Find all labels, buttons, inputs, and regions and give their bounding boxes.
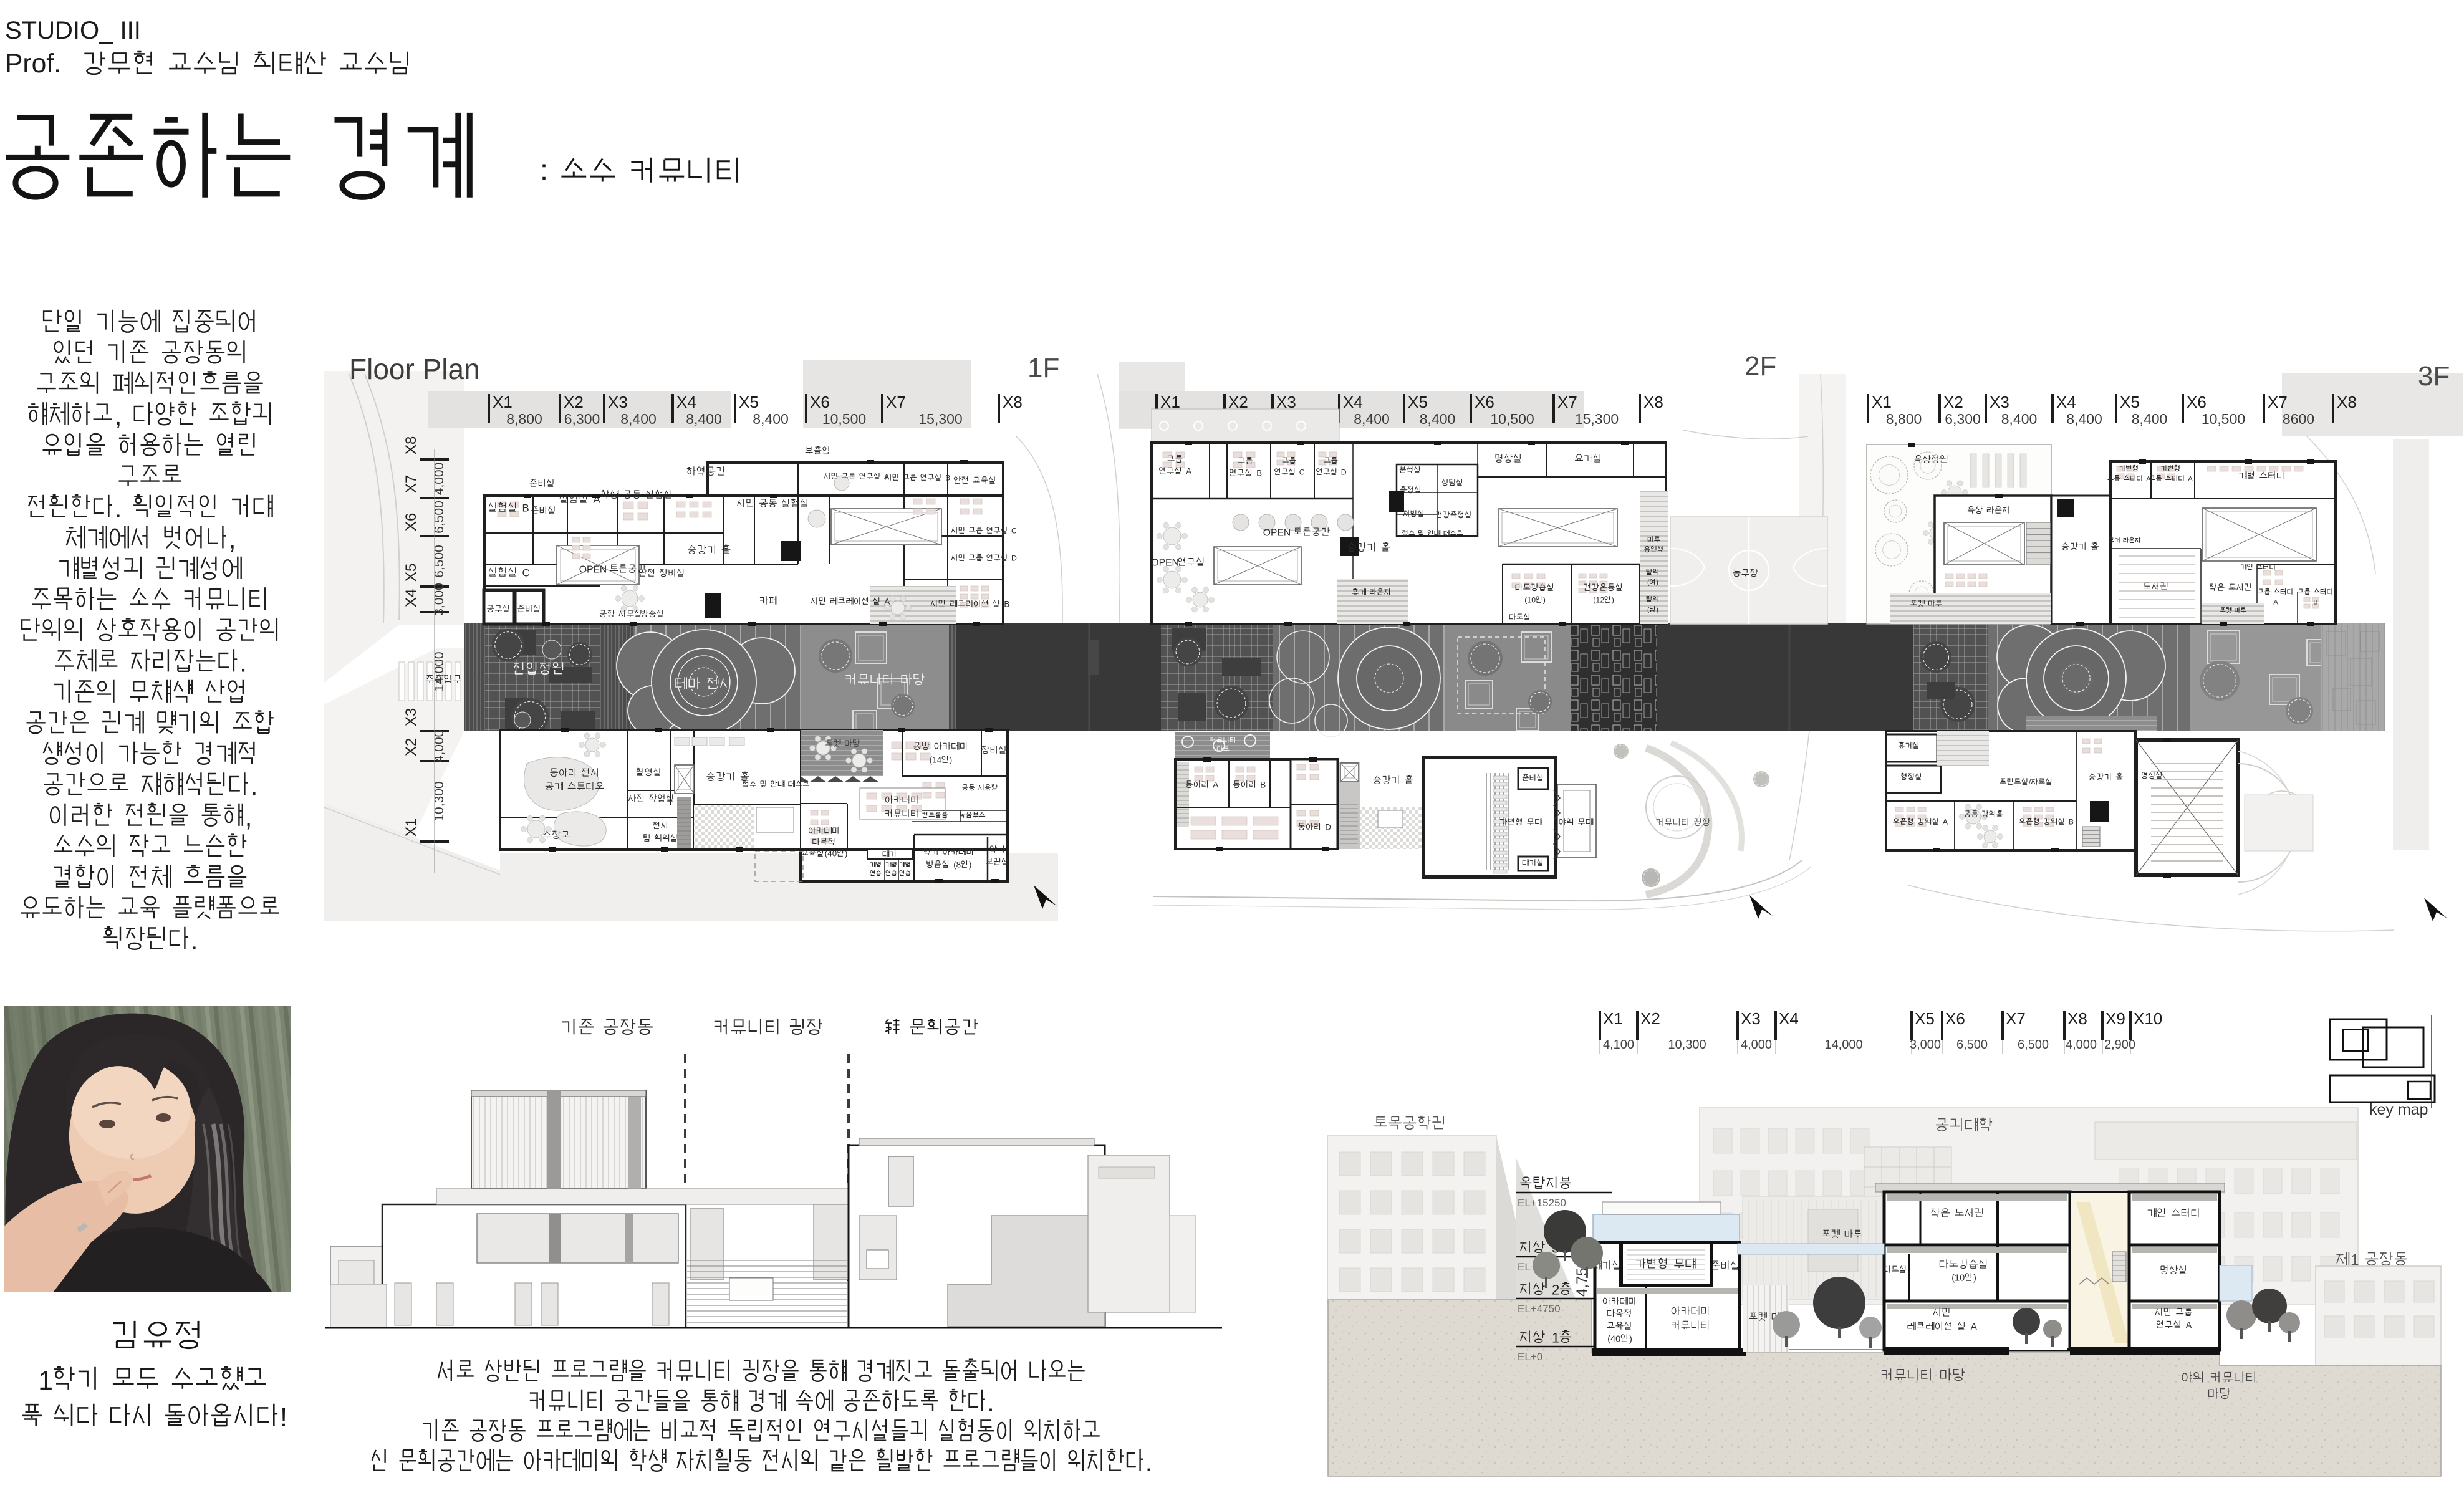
svg-text:X2: X2 <box>1640 1009 1660 1028</box>
svg-text:1F: 1F <box>1027 353 1059 383</box>
svg-text:X6: X6 <box>403 513 420 531</box>
svg-text:X4: X4 <box>1343 393 1363 411</box>
svg-text:8600: 8600 <box>2283 411 2314 427</box>
svg-text:6,300: 6,300 <box>564 411 600 427</box>
svg-text:B: B <box>2069 818 2074 827</box>
svg-text:X10: X10 <box>2134 1009 2162 1028</box>
svg-text:2F: 2F <box>1745 351 1776 382</box>
svg-text:1: 1 <box>38 1366 53 1396</box>
svg-text:15,300: 15,300 <box>918 411 962 427</box>
svg-text:(: ( <box>1647 607 1650 614</box>
svg-text:8,400: 8,400 <box>2132 411 2168 427</box>
svg-text:X3: X3 <box>403 708 420 726</box>
svg-text:X5: X5 <box>739 393 759 411</box>
svg-text:(40: (40 <box>825 849 837 858</box>
svg-text:.: . <box>1145 1448 1153 1477</box>
svg-text:8,400: 8,400 <box>620 411 657 427</box>
svg-text:A: A <box>2146 476 2151 483</box>
svg-text:.: . <box>191 926 198 956</box>
svg-text:): ) <box>1656 579 1658 587</box>
svg-text:): ) <box>1543 596 1546 605</box>
svg-text:6,500: 6,500 <box>432 501 446 534</box>
svg-text:B: B <box>1004 600 1009 609</box>
svg-text:4,100: 4,100 <box>1603 1038 1634 1052</box>
svg-text:X1: X1 <box>493 393 513 411</box>
svg-text:C: C <box>1011 527 1017 535</box>
svg-text:4,000: 4,000 <box>2066 1038 2097 1052</box>
svg-text:,: , <box>115 401 122 431</box>
svg-text:X6: X6 <box>2187 393 2207 411</box>
svg-text:X9: X9 <box>2105 1009 2125 1028</box>
svg-text:X1: X1 <box>1872 393 1892 411</box>
svg-text:(10: (10 <box>1524 596 1536 605</box>
svg-text:/: / <box>2029 778 2031 787</box>
svg-text:X7: X7 <box>1557 393 1577 411</box>
svg-text:X3: X3 <box>1741 1009 1761 1028</box>
svg-text:): ) <box>845 849 847 858</box>
svg-text:X1: X1 <box>403 819 420 837</box>
svg-text:): ) <box>969 860 971 870</box>
svg-text:X7: X7 <box>2268 393 2288 411</box>
svg-text:A: A <box>1213 780 1218 790</box>
svg-text:X7: X7 <box>2006 1009 2026 1028</box>
svg-text:Floor Plan: Floor Plan <box>349 353 480 385</box>
svg-text:X6: X6 <box>810 393 830 411</box>
svg-text:3,000: 3,000 <box>432 583 446 616</box>
svg-text::: : <box>540 153 548 186</box>
svg-text:(10: (10 <box>1951 1274 1965 1284</box>
svg-text:(12: (12 <box>1593 596 1604 605</box>
svg-text:!: ! <box>280 1403 287 1433</box>
svg-text:OPEN: OPEN <box>1151 558 1178 569</box>
svg-text:8,800: 8,800 <box>506 411 542 427</box>
svg-text:4,000: 4,000 <box>1741 1038 1772 1052</box>
svg-text:B: B <box>945 474 950 483</box>
svg-text:A: A <box>2186 1321 2192 1331</box>
svg-text:X8: X8 <box>403 436 420 454</box>
svg-text:B: B <box>2313 599 2317 607</box>
svg-text:A: A <box>884 473 890 481</box>
svg-text:2,900: 2,900 <box>2104 1038 2135 1052</box>
svg-text:D: D <box>1011 554 1017 563</box>
svg-text:1: 1 <box>1552 1330 1559 1345</box>
svg-text:10,300: 10,300 <box>1668 1038 1706 1052</box>
svg-text:): ) <box>1973 1274 1976 1284</box>
svg-text:key map: key map <box>2369 1101 2428 1118</box>
svg-text:B: B <box>1256 469 1262 478</box>
svg-text:A: A <box>2188 476 2193 483</box>
svg-text:X3: X3 <box>1990 393 2009 411</box>
svg-text:X7: X7 <box>886 393 906 411</box>
svg-text:.: . <box>987 1388 994 1417</box>
svg-text:A: A <box>1971 1322 1978 1333</box>
svg-text:X5: X5 <box>1915 1009 1935 1028</box>
svg-text:.: . <box>239 648 247 678</box>
svg-text:1: 1 <box>2351 1252 2359 1269</box>
svg-text:.: . <box>251 771 258 801</box>
svg-text:X4: X4 <box>676 393 696 411</box>
svg-text:B: B <box>1260 780 1266 790</box>
svg-text:C: C <box>1299 468 1305 477</box>
svg-text:8,400: 8,400 <box>753 411 789 427</box>
svg-text:C: C <box>522 567 530 579</box>
svg-text:A: A <box>1186 467 1191 476</box>
svg-text:EL+4750: EL+4750 <box>1518 1303 1561 1315</box>
svg-text:8,400: 8,400 <box>2066 411 2102 427</box>
svg-text:D: D <box>1341 468 1347 477</box>
svg-text:X8: X8 <box>2067 1009 2087 1028</box>
svg-text:X5: X5 <box>2120 393 2140 411</box>
svg-text:6,500: 6,500 <box>2018 1038 2049 1052</box>
svg-text:,: , <box>229 524 236 554</box>
svg-text:8,400: 8,400 <box>1354 411 1390 427</box>
svg-text:): ) <box>950 756 952 765</box>
svg-text:STUDIO_ III: STUDIO_ III <box>5 17 141 44</box>
svg-text:B: B <box>522 502 529 514</box>
svg-text:10,500: 10,500 <box>822 411 866 427</box>
svg-text:D: D <box>1325 823 1331 832</box>
svg-text:(14: (14 <box>930 756 942 765</box>
svg-text:8,400: 8,400 <box>686 411 722 427</box>
svg-text:): ) <box>1656 607 1658 614</box>
svg-text:): ) <box>1612 596 1614 605</box>
svg-text:X2: X2 <box>403 738 420 756</box>
svg-text:X8: X8 <box>2337 393 2357 411</box>
svg-text:X4: X4 <box>2056 393 2076 411</box>
svg-text:14,000: 14,000 <box>432 651 446 691</box>
svg-text:3F: 3F <box>2418 361 2450 391</box>
svg-text:6,500: 6,500 <box>432 545 446 578</box>
svg-text:10,300: 10,300 <box>432 781 446 821</box>
svg-text:X3: X3 <box>608 393 628 411</box>
svg-text:X6: X6 <box>1475 393 1494 411</box>
svg-text:X5: X5 <box>403 564 420 582</box>
svg-text:OPEN: OPEN <box>579 565 607 575</box>
svg-text:X4: X4 <box>1779 1009 1799 1028</box>
svg-text:10,500: 10,500 <box>2202 411 2245 427</box>
svg-text:X2: X2 <box>564 393 584 411</box>
svg-text:X4: X4 <box>403 589 420 607</box>
svg-text:A: A <box>1943 818 1948 827</box>
svg-text:4,000: 4,000 <box>432 730 446 763</box>
svg-text:14,000: 14,000 <box>1824 1038 1862 1052</box>
svg-text:EL+15250: EL+15250 <box>1518 1197 1566 1209</box>
svg-text:X1: X1 <box>1603 1009 1623 1028</box>
svg-text:8,400: 8,400 <box>1420 411 1456 427</box>
svg-text:X2: X2 <box>1943 393 1963 411</box>
svg-text:15,300: 15,300 <box>1575 411 1619 427</box>
svg-text:,: , <box>245 802 253 832</box>
svg-text:3,000: 3,000 <box>1910 1038 1941 1052</box>
svg-text:.: . <box>115 494 122 524</box>
svg-text:OPEN: OPEN <box>1263 528 1291 539</box>
svg-text:6,500: 6,500 <box>1956 1038 1988 1052</box>
svg-text:X8: X8 <box>1003 393 1023 411</box>
svg-text:2: 2 <box>1552 1282 1559 1297</box>
svg-text:): ) <box>1629 1335 1632 1345</box>
svg-text:Prof.: Prof. <box>5 49 61 79</box>
svg-text:8,800: 8,800 <box>1886 411 1922 427</box>
svg-text:6,300: 6,300 <box>1945 411 1981 427</box>
svg-text:X7: X7 <box>403 475 420 493</box>
svg-text:(8: (8 <box>953 860 961 870</box>
svg-text:A: A <box>884 597 890 607</box>
svg-text:A: A <box>2273 599 2278 607</box>
svg-text:EL+0: EL+0 <box>1518 1351 1542 1363</box>
svg-text:X8: X8 <box>1643 393 1663 411</box>
svg-text:10,500: 10,500 <box>1490 411 1534 427</box>
svg-text:(40: (40 <box>1607 1335 1620 1345</box>
svg-text:X6: X6 <box>1945 1009 1965 1028</box>
svg-text:8,400: 8,400 <box>2001 411 2038 427</box>
svg-text:4,000: 4,000 <box>432 463 446 496</box>
svg-text:(: ( <box>1647 579 1650 587</box>
svg-text:X5: X5 <box>1408 393 1428 411</box>
